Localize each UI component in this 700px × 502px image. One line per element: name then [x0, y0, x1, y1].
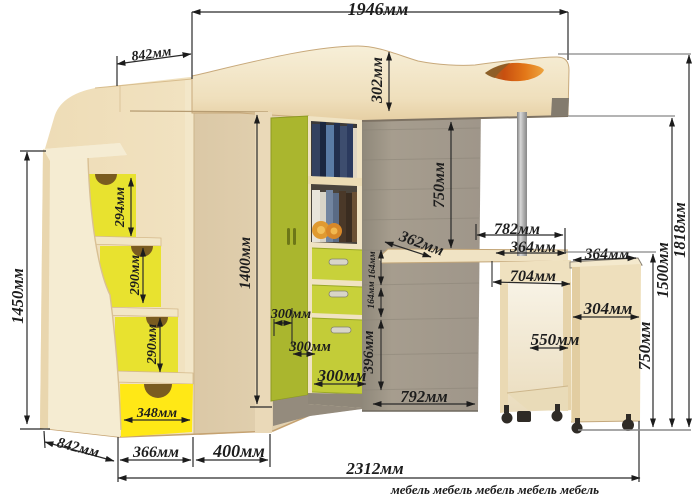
svg-text:1946мм: 1946мм [348, 0, 409, 19]
svg-text:164мм: 164мм [368, 251, 378, 279]
svg-text:792мм: 792мм [400, 387, 447, 406]
svg-text:мебель мебель мебель мебель ме: мебель мебель мебель мебель мебель [390, 482, 599, 497]
svg-text:2312мм: 2312мм [345, 459, 404, 478]
svg-text:300мм: 300мм [288, 339, 331, 355]
svg-text:302мм: 302мм [369, 57, 386, 104]
svg-text:294мм: 294мм [113, 187, 128, 229]
svg-text:782мм: 782мм [494, 221, 540, 238]
svg-text:364мм: 364мм [509, 239, 556, 256]
svg-text:164мм: 164мм [367, 281, 377, 309]
svg-text:704мм: 704мм [510, 268, 556, 285]
svg-text:304мм: 304мм [583, 299, 633, 318]
svg-text:290мм: 290мм [145, 324, 160, 366]
svg-text:750мм: 750мм [431, 162, 448, 208]
svg-text:1818мм: 1818мм [670, 202, 689, 258]
svg-text:1400мм: 1400мм [237, 237, 254, 290]
svg-text:348мм: 348мм [136, 406, 178, 421]
svg-text:366мм: 366мм [132, 444, 179, 461]
svg-text:400мм: 400мм [212, 441, 265, 461]
svg-text:300мм: 300мм [270, 307, 312, 322]
svg-text:396мм: 396мм [361, 330, 377, 374]
svg-text:300мм: 300мм [317, 366, 367, 385]
svg-text:290мм: 290мм [128, 255, 143, 297]
svg-text:750мм: 750мм [635, 321, 654, 370]
svg-text:364мм: 364мм [584, 246, 630, 263]
svg-text:1450мм: 1450мм [8, 268, 27, 324]
svg-text:550мм: 550мм [531, 330, 580, 349]
